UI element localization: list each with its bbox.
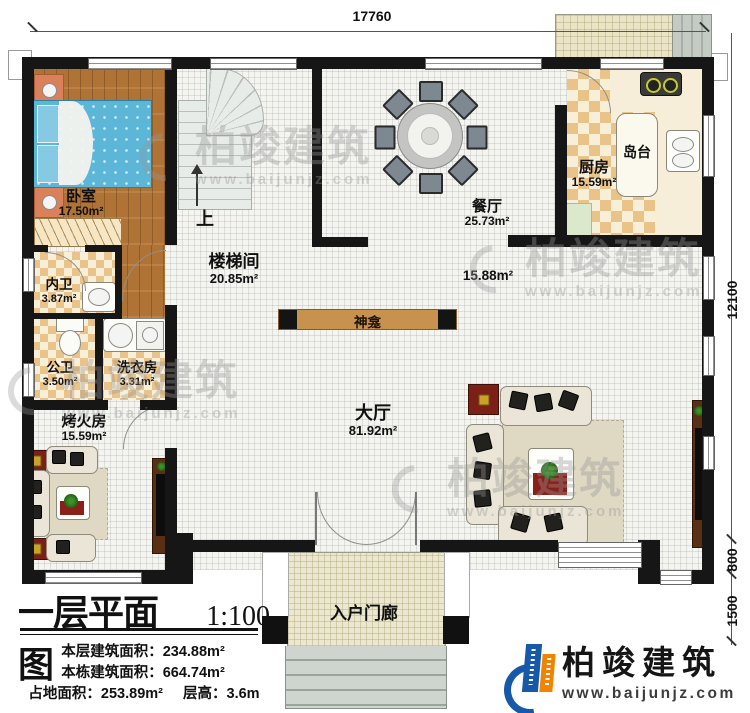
wall: [165, 68, 177, 245]
room-label-public-bath: 公卫 3.50m²: [43, 360, 78, 388]
kitchen-sink: [666, 130, 700, 172]
room-name: 公卫: [46, 360, 73, 375]
room-name: 内卫: [45, 277, 72, 292]
room-label-porch: 入户门廊: [330, 604, 398, 624]
toilet-bowl: [59, 330, 81, 356]
room-area: 25.73m²: [465, 215, 510, 229]
room-area: 3.50m²: [43, 376, 78, 389]
brand-name: 柏竣建筑: [562, 646, 736, 679]
sofa-pillow: [52, 450, 66, 464]
entrance-steps: [285, 646, 447, 709]
dining-chair: [419, 81, 443, 102]
wall: [32, 245, 48, 252]
wall: [95, 319, 103, 400]
stair-arrow-head: [191, 164, 203, 174]
wall: [508, 235, 712, 247]
room-area: 81.92m²: [349, 424, 397, 439]
room-label-island: 岛台: [623, 144, 651, 160]
window: [600, 58, 664, 70]
legend-value: 234.88m²: [163, 644, 225, 660]
entrance-door-leaf: [415, 492, 417, 545]
room-area: 15.88m²: [463, 268, 513, 283]
sofa-pillow: [473, 461, 492, 480]
shrine-label: 神龛: [279, 311, 456, 331]
room-label-fire-room: 烤火房 15.59m²: [61, 413, 106, 444]
sofa-pillow: [473, 489, 492, 508]
dining-chair: [467, 126, 488, 150]
dimension-right-main: 12100: [724, 272, 740, 328]
sofa-pillow: [534, 393, 554, 413]
room-name: 楼梯间: [209, 252, 260, 271]
porch-pillar: [443, 616, 469, 644]
plant: [64, 494, 78, 508]
wall: [140, 400, 177, 410]
laundry-counter: [103, 318, 167, 352]
plant: [541, 462, 558, 479]
floor-plan-canvas: 17760 12100 800 1500: [0, 0, 750, 713]
brand-url: www.baijunjz.com: [562, 685, 736, 703]
window: [703, 115, 715, 177]
room-area: 20.85m²: [209, 272, 260, 287]
room-area: 17.50m²: [59, 205, 104, 219]
shrine-altar: 神龛: [278, 309, 457, 330]
room-name: 餐厅: [472, 198, 502, 215]
room-name: 洗衣房: [117, 360, 158, 375]
sofa-pillow: [543, 512, 563, 532]
window: [210, 58, 297, 70]
room-name: 岛台: [623, 144, 651, 160]
legend-label: 本层建筑面积：: [61, 644, 163, 660]
wall: [312, 237, 368, 247]
room-label-hall: 大厅 81.92m²: [349, 403, 397, 439]
side-table: [468, 384, 499, 415]
room-area: 3.31m²: [117, 376, 158, 389]
window: [23, 363, 35, 397]
dimension-right-step: 800: [724, 534, 740, 586]
dimension-line-top: [30, 31, 706, 32]
dimension-right-porch: 1500: [724, 585, 740, 637]
window: [703, 436, 715, 470]
stove: [640, 72, 682, 96]
wall: [690, 570, 712, 584]
legend-value: 253.89m²: [101, 686, 163, 702]
wall: [165, 305, 177, 405]
legend-label: 层高：: [183, 686, 227, 702]
room-label-stairwell: 楼梯间 20.85m²: [209, 252, 260, 286]
window: [703, 336, 715, 376]
wall: [312, 68, 322, 247]
room-name: 烤火房: [61, 413, 106, 430]
wardrobe: [34, 218, 122, 247]
wall: [22, 400, 108, 410]
window: [703, 256, 715, 300]
wall: [22, 57, 34, 584]
room-name: 入户门廊: [330, 604, 398, 623]
wall: [165, 533, 193, 584]
window: [660, 570, 692, 585]
legend-block: 一层平面图 1:100 本层建筑面积：234.88m² 本栋建筑面积：664.7…: [18, 584, 270, 704]
dimension-top-value: 17760: [340, 8, 404, 24]
legend-rule: [20, 628, 258, 631]
open-area-label: 15.88m²: [463, 268, 513, 284]
wall: [165, 448, 177, 533]
brand-logo-icon: [504, 642, 556, 706]
porch-floor: [287, 552, 446, 647]
room-label-dining: 餐厅 25.73m²: [465, 198, 510, 229]
porch-column: [444, 552, 470, 618]
brand-logo-block: 柏竣建筑 www.baijunjz.com: [504, 640, 714, 708]
window: [45, 572, 142, 584]
terrace-floor: [555, 14, 674, 59]
legend-label: 本栋建筑面积：: [61, 665, 163, 681]
bathroom-sink: [82, 282, 116, 312]
room-area: 3.87m²: [42, 293, 77, 306]
sofa-pillow: [70, 452, 84, 466]
tv: [156, 474, 165, 536]
room-label-inner-bath: 内卫 3.87m²: [42, 277, 77, 305]
sofa-pillow: [56, 540, 70, 554]
room-label-bedroom: 卧室 17.50m²: [59, 188, 104, 219]
room-label-kitchen: 厨房 15.59m²: [572, 159, 617, 190]
dining-chair: [419, 173, 443, 194]
legend-line: 本层建筑面积：234.88m²: [18, 640, 268, 661]
legend-value: 664.74m²: [163, 665, 225, 681]
window: [88, 58, 172, 70]
stairs-up-label: 上: [196, 209, 214, 230]
stair-direction-arrow: [196, 172, 198, 206]
wall: [555, 105, 567, 247]
room-name: 大厅: [355, 403, 391, 423]
room-name: 卧室: [66, 188, 96, 205]
room-name: 厨房: [579, 159, 609, 176]
wall: [192, 540, 315, 552]
dining-chair: [375, 126, 396, 150]
legend-rule: [20, 634, 258, 635]
dining-table: [397, 103, 463, 169]
legend-value: 3.6m: [227, 686, 260, 702]
wall: [85, 245, 115, 252]
room-area: 15.59m²: [61, 430, 106, 444]
sofa-pillow: [508, 390, 528, 410]
window: [425, 58, 542, 70]
terrace-steps: [672, 14, 712, 59]
entrance-door-leaf: [315, 492, 317, 545]
legend-line: 占地面积：253.89m²层高：3.6m: [10, 682, 278, 703]
wall: [420, 540, 558, 552]
wall: [32, 313, 122, 319]
room-label-laundry: 洗衣房 3.31m²: [117, 360, 158, 388]
legend-line: 本栋建筑面积：664.74m²: [18, 661, 268, 682]
bed: [32, 100, 152, 188]
up-text: 上: [196, 209, 214, 229]
window: [23, 258, 35, 292]
bay-window: [558, 542, 642, 568]
wall: [115, 245, 122, 318]
chaise: [46, 534, 96, 562]
legend-label: 占地面积：: [28, 686, 101, 702]
room-area: 15.59m²: [572, 176, 617, 190]
